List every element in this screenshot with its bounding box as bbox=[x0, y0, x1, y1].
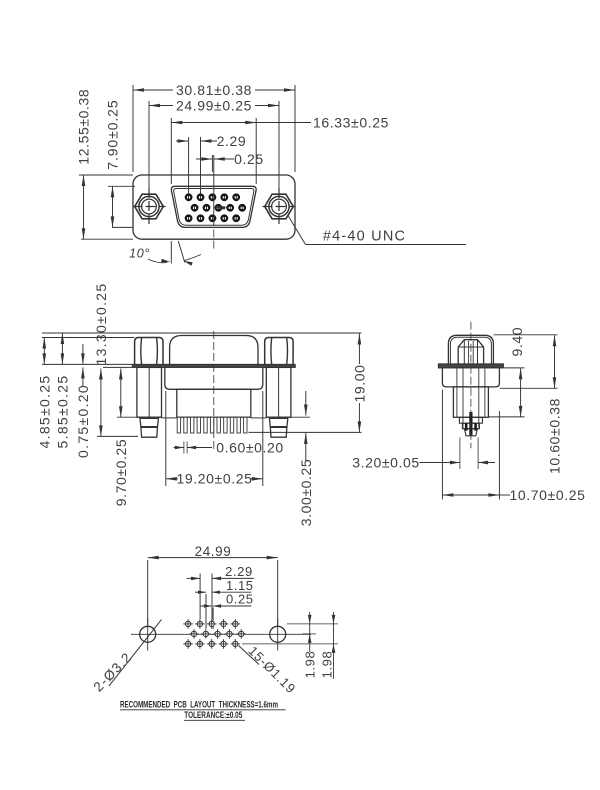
svg-text:0.25: 0.25 bbox=[226, 592, 254, 607]
svg-text:2.29: 2.29 bbox=[225, 564, 253, 579]
svg-text:19.20±0.25: 19.20±0.25 bbox=[177, 471, 253, 487]
svg-text:0.75±0.20: 0.75±0.20 bbox=[75, 384, 91, 458]
svg-text:3.00±0.25: 3.00±0.25 bbox=[298, 459, 314, 527]
svg-text:1.98: 1.98 bbox=[303, 651, 318, 679]
svg-text:#4-40 UNC: #4-40 UNC bbox=[323, 228, 406, 244]
svg-text:1.15: 1.15 bbox=[226, 578, 254, 593]
svg-text:2.29: 2.29 bbox=[217, 133, 247, 149]
svg-text:10.70±0.25: 10.70±0.25 bbox=[510, 487, 586, 503]
svg-text:3.20±0.05: 3.20±0.05 bbox=[352, 454, 420, 470]
svg-text:RECOMMENDED PCB LAYOUT THIC: RECOMMENDED PCB LAYOUT THICKNESS=1.6mm bbox=[120, 699, 278, 710]
svg-text:0.25: 0.25 bbox=[234, 151, 264, 167]
svg-text:10°: 10° bbox=[129, 247, 150, 261]
svg-text:4.85±0.25: 4.85±0.25 bbox=[36, 375, 52, 449]
svg-text:16.33±0.25: 16.33±0.25 bbox=[313, 114, 389, 130]
svg-text:0.60±0.20: 0.60±0.20 bbox=[216, 439, 284, 455]
svg-text:24.99±0.25: 24.99±0.25 bbox=[176, 97, 252, 113]
svg-text:10.60±0.38: 10.60±0.38 bbox=[547, 398, 563, 474]
svg-text:9.70±0.25: 9.70±0.25 bbox=[113, 439, 129, 507]
svg-text:19.00: 19.00 bbox=[351, 364, 367, 402]
svg-text:30.81±0.38: 30.81±0.38 bbox=[176, 82, 252, 98]
svg-text:TOLERANCE:±0.05: TOLERANCE:±0.05 bbox=[184, 710, 242, 721]
svg-text:7.90±0.25: 7.90±0.25 bbox=[104, 99, 120, 169]
svg-text:13.30±0.25: 13.30±0.25 bbox=[93, 283, 109, 366]
svg-text:12.55±0.38: 12.55±0.38 bbox=[75, 89, 91, 165]
svg-text:9.40: 9.40 bbox=[509, 327, 525, 357]
svg-text:5.85±0.25: 5.85±0.25 bbox=[54, 375, 70, 449]
svg-text:1.98: 1.98 bbox=[320, 651, 335, 679]
svg-text:24.99: 24.99 bbox=[195, 544, 232, 559]
